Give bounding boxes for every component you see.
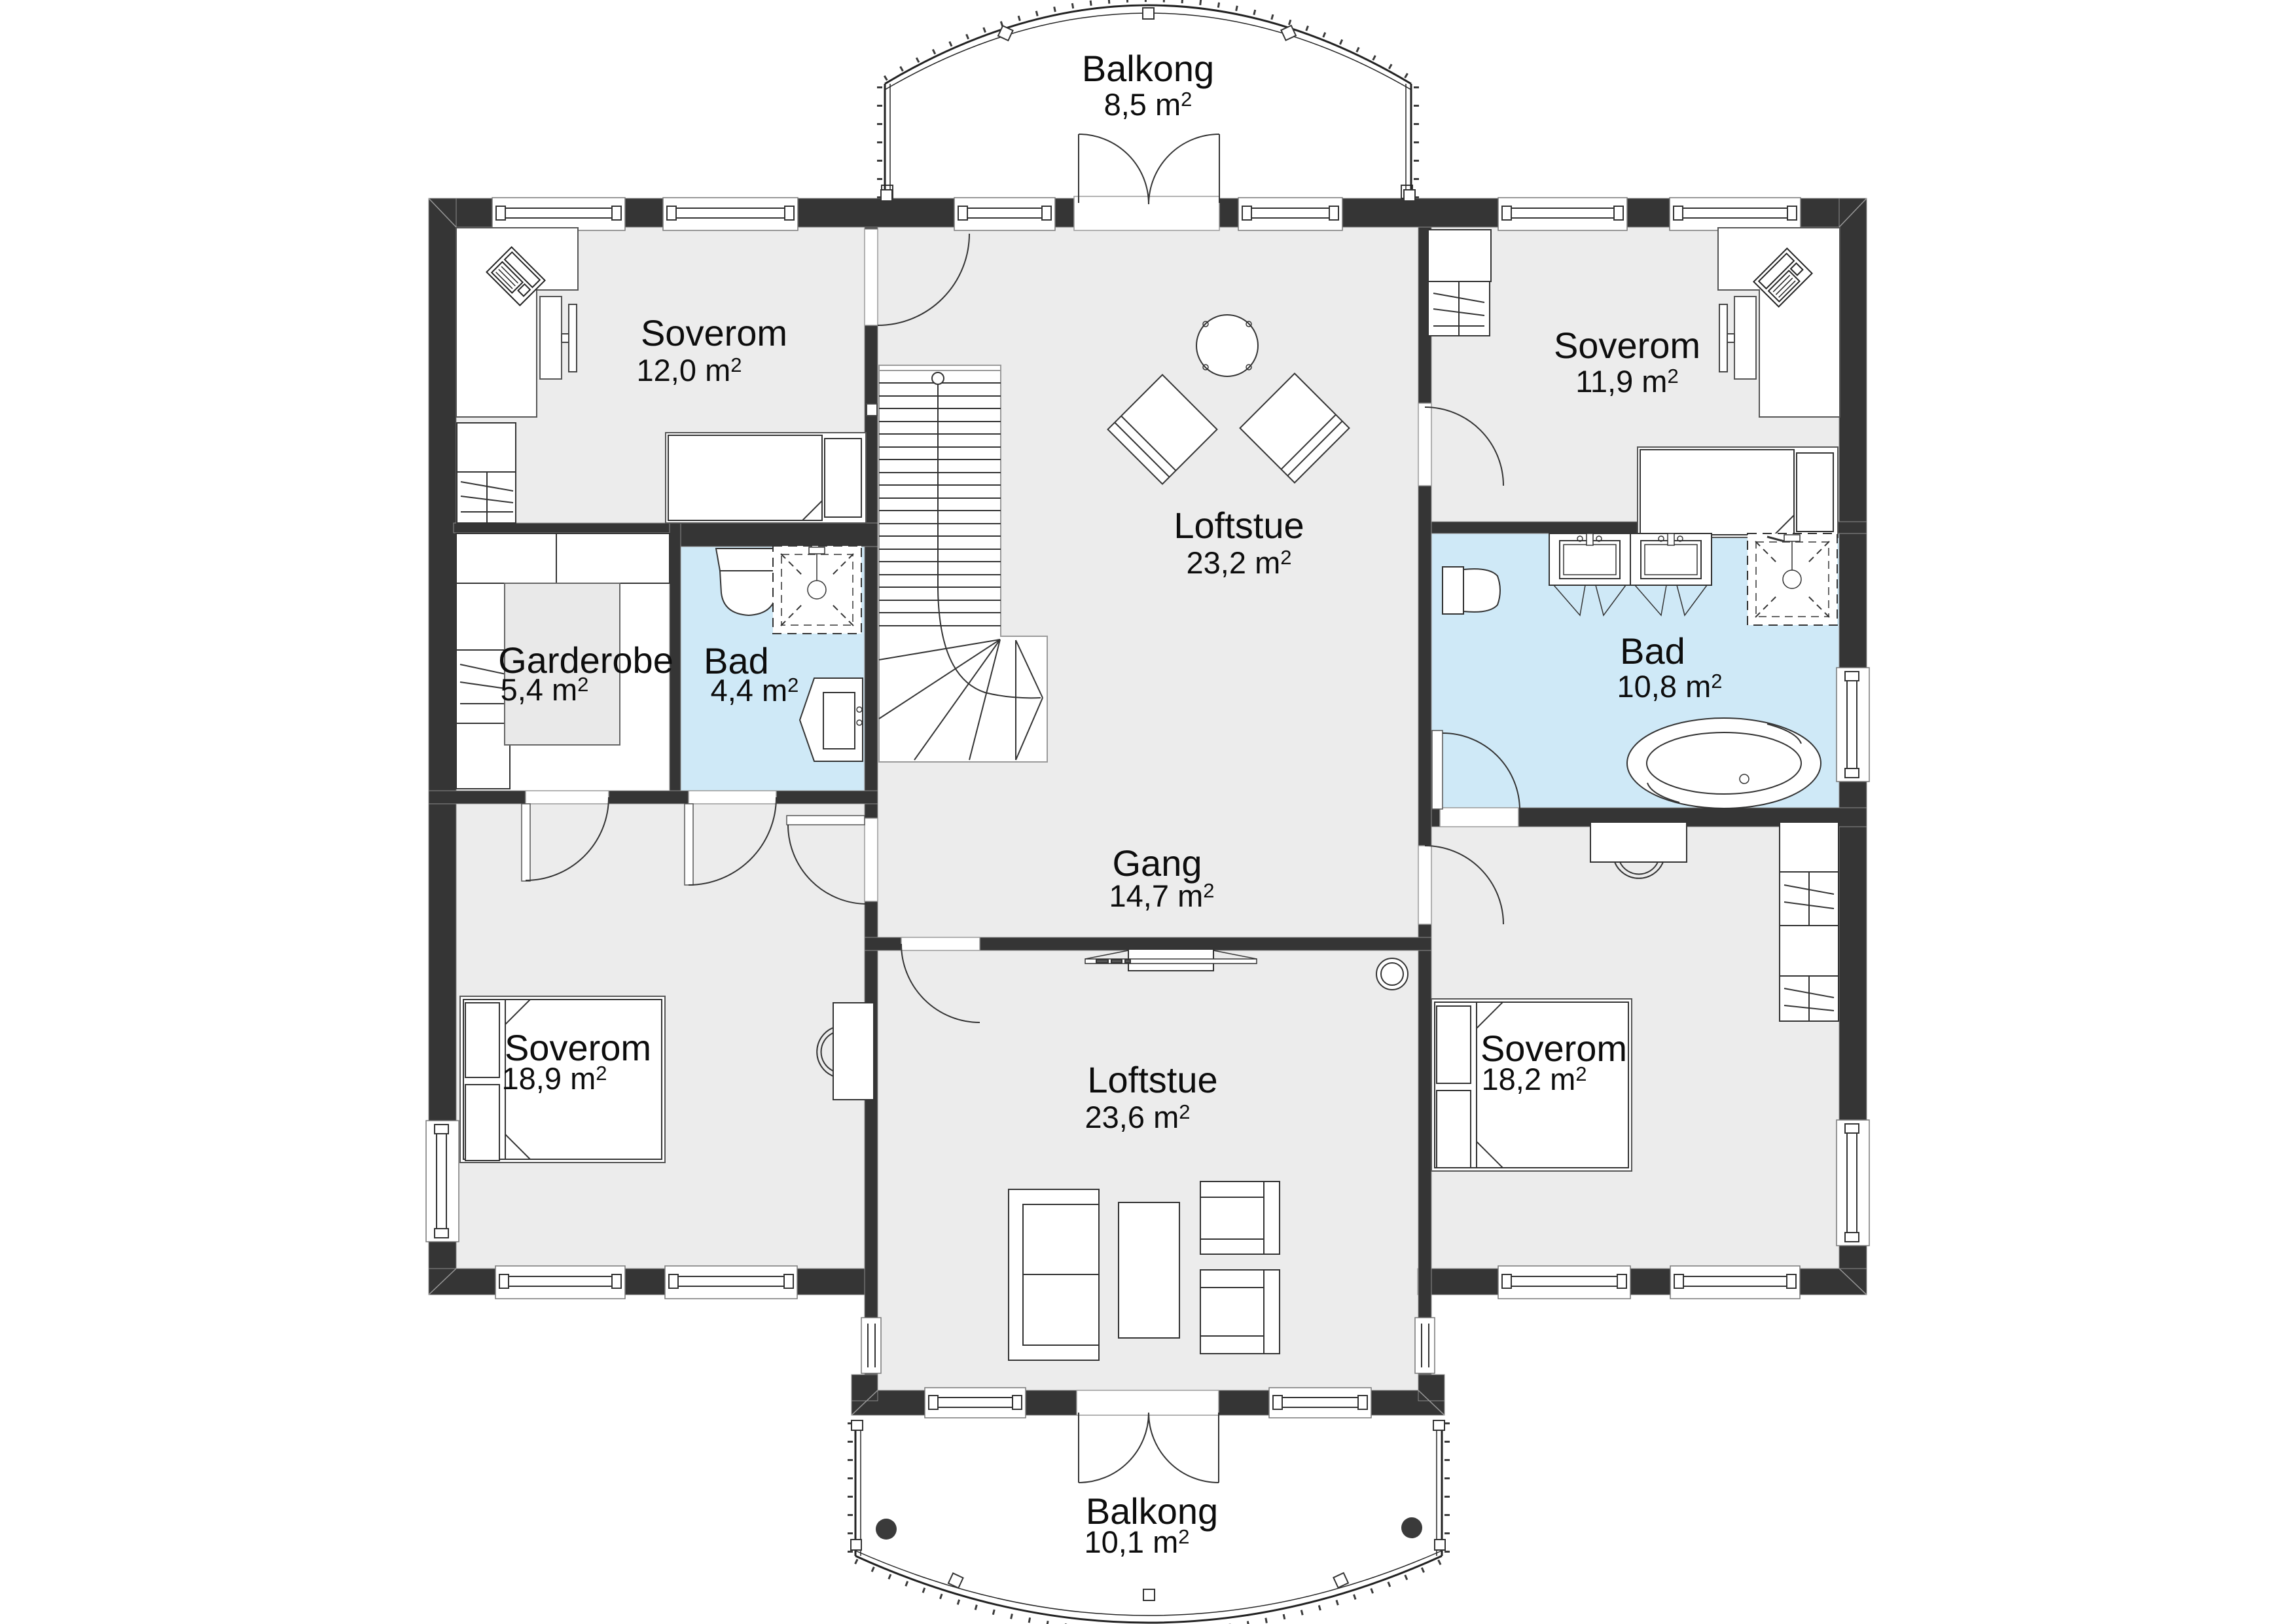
svg-text:Soverom: Soverom (641, 312, 787, 353)
svg-text:5,4 m2: 5,4 m2 (501, 672, 589, 707)
svg-text:4,4 m2: 4,4 m2 (711, 673, 799, 708)
svg-text:10,1 m2: 10,1 m2 (1085, 1525, 1190, 1559)
svg-text:Soverom: Soverom (1554, 325, 1700, 366)
svg-text:12,0 m2: 12,0 m2 (637, 353, 742, 388)
svg-text:Bad: Bad (1620, 630, 1685, 672)
svg-text:11,9 m2: 11,9 m2 (1575, 364, 1678, 399)
svg-text:18,2 m2: 18,2 m2 (1482, 1062, 1587, 1096)
svg-text:23,2 m2: 23,2 m2 (1187, 545, 1292, 580)
svg-text:10,8 m2: 10,8 m2 (1617, 669, 1723, 704)
svg-text:Loftstue: Loftstue (1087, 1059, 1217, 1100)
svg-text:Loftstue: Loftstue (1174, 505, 1304, 546)
svg-text:14,7 m2: 14,7 m2 (1109, 878, 1215, 913)
svg-text:Gang: Gang (1113, 842, 1202, 884)
svg-text:8,5 m2: 8,5 m2 (1104, 87, 1193, 122)
svg-text:Balkong: Balkong (1082, 48, 1214, 89)
svg-text:23,6 m2: 23,6 m2 (1085, 1100, 1191, 1134)
svg-text:18,9 m2: 18,9 m2 (502, 1061, 607, 1096)
